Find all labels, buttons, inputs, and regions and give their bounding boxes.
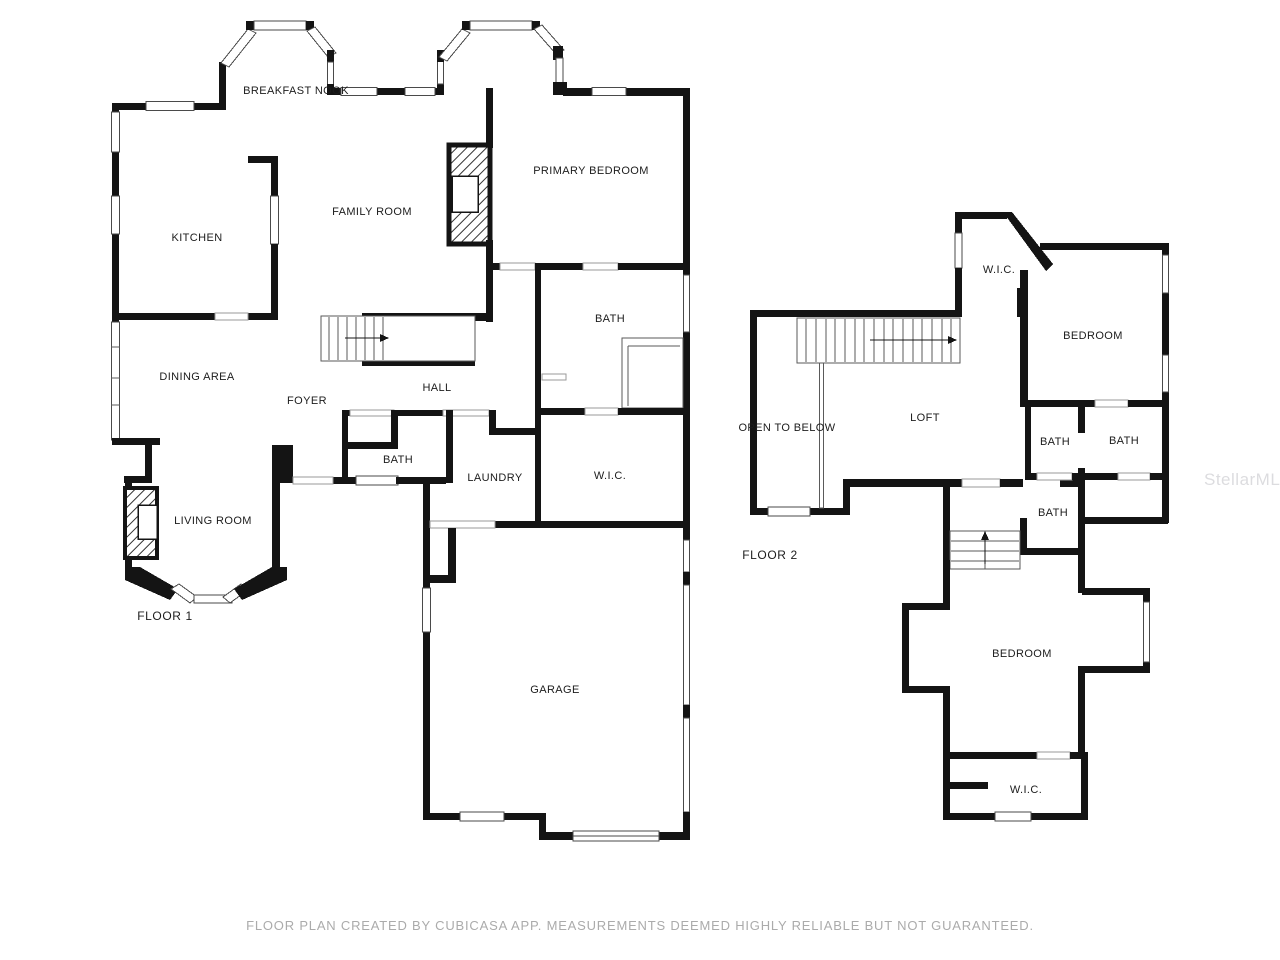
room-label-bedroom-2: BEDROOM — [1063, 330, 1123, 342]
room-label-loft: LOFT — [910, 412, 940, 424]
floor1-walls — [111, 21, 690, 841]
caption: FLOOR PLAN CREATED BY CUBICASA APP. MEAS… — [0, 918, 1280, 933]
room-label-wic-2-top: W.I.C. — [983, 264, 1015, 276]
floor-title-1: FLOOR 1 — [137, 609, 193, 623]
room-label-primary-bedroom: PRIMARY BEDROOM — [533, 165, 649, 177]
room-label-family-room: FAMILY ROOM — [332, 206, 412, 218]
floor-plan-drawing — [0, 0, 1280, 960]
room-label-bath-2b: BATH — [1109, 435, 1139, 447]
floor-title-2: FLOOR 2 — [742, 548, 798, 562]
room-label-dining-area: DINING AREA — [159, 371, 234, 383]
floor-plan-canvas: BREAKFAST NOOKKITCHENFAMILY ROOMPRIMARY … — [0, 0, 1280, 960]
room-label-breakfast-nook: BREAKFAST NOOK — [243, 85, 349, 97]
room-label-bath-2a: BATH — [1040, 436, 1070, 448]
room-label-garage: GARAGE — [530, 684, 579, 696]
room-label-wic-2-bottom: W.I.C. — [1010, 784, 1042, 796]
room-label-bedroom-3: BEDROOM — [992, 648, 1052, 660]
room-label-wic-primary: W.I.C. — [594, 470, 626, 482]
room-label-hall: HALL — [422, 382, 451, 394]
room-label-foyer: FOYER — [287, 395, 327, 407]
room-label-bath-2c: BATH — [1038, 507, 1068, 519]
watermark: StellarMLS — [1204, 470, 1280, 490]
room-label-open-to-below: OPEN TO BELOW — [738, 422, 835, 434]
room-label-kitchen: KITCHEN — [171, 232, 222, 244]
room-label-primary-bath: BATH — [595, 313, 625, 325]
floor2-walls — [750, 212, 1169, 821]
room-label-living-room: LIVING ROOM — [174, 515, 252, 527]
room-label-laundry: LAUNDRY — [467, 472, 522, 484]
room-label-half-bath: BATH — [383, 454, 413, 466]
